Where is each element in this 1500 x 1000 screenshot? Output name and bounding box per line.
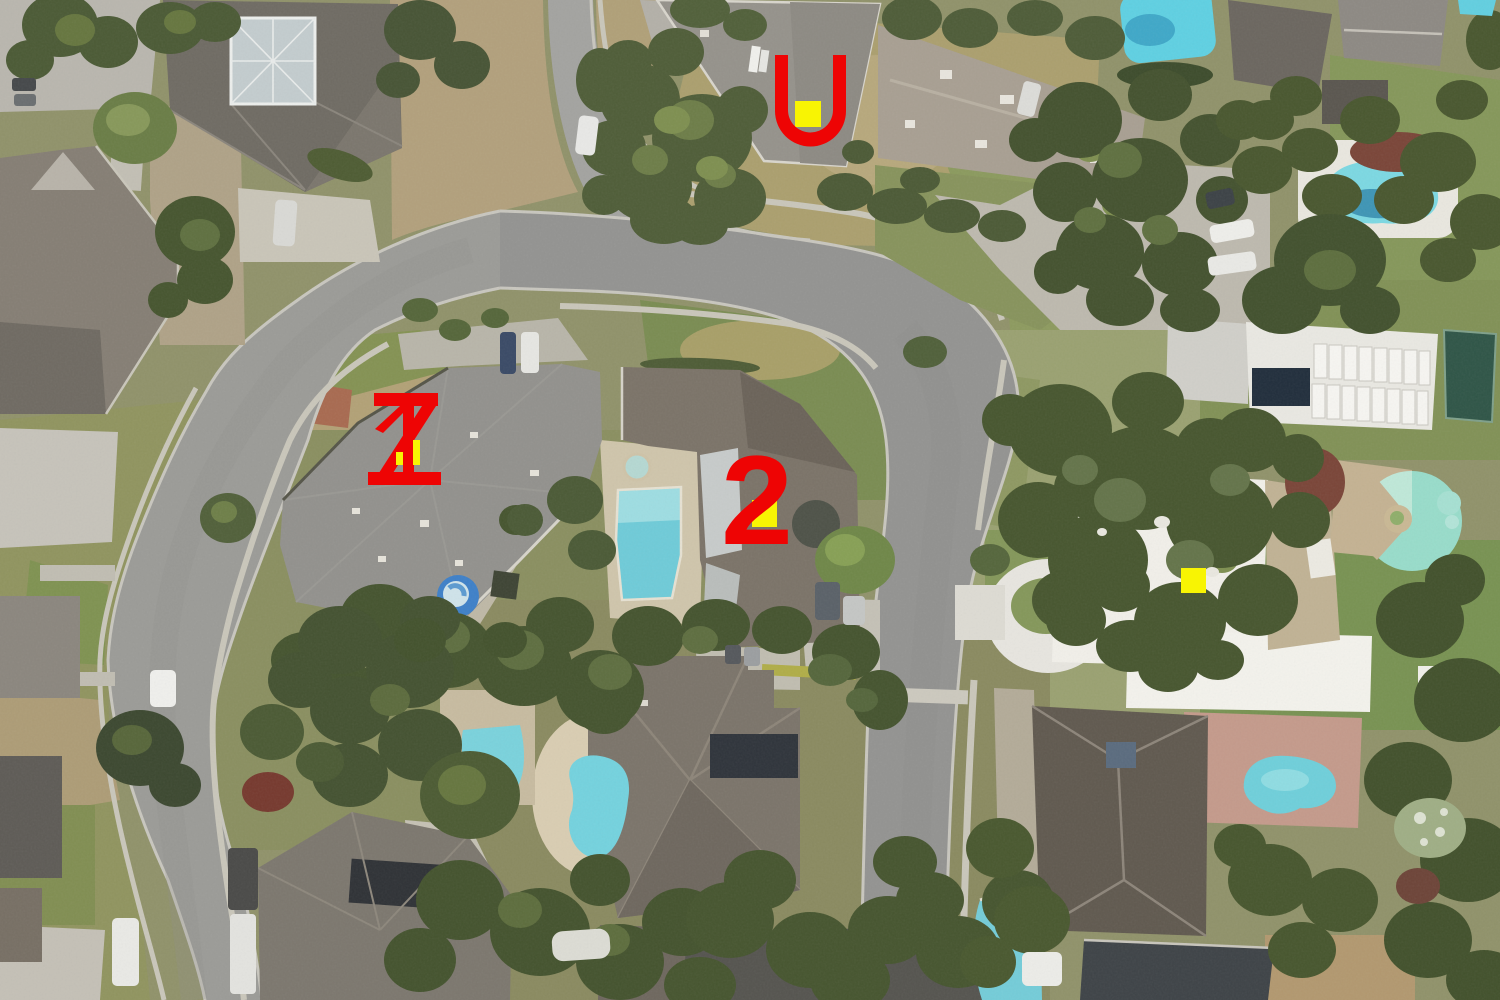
svg-text:2: 2 xyxy=(721,429,793,571)
